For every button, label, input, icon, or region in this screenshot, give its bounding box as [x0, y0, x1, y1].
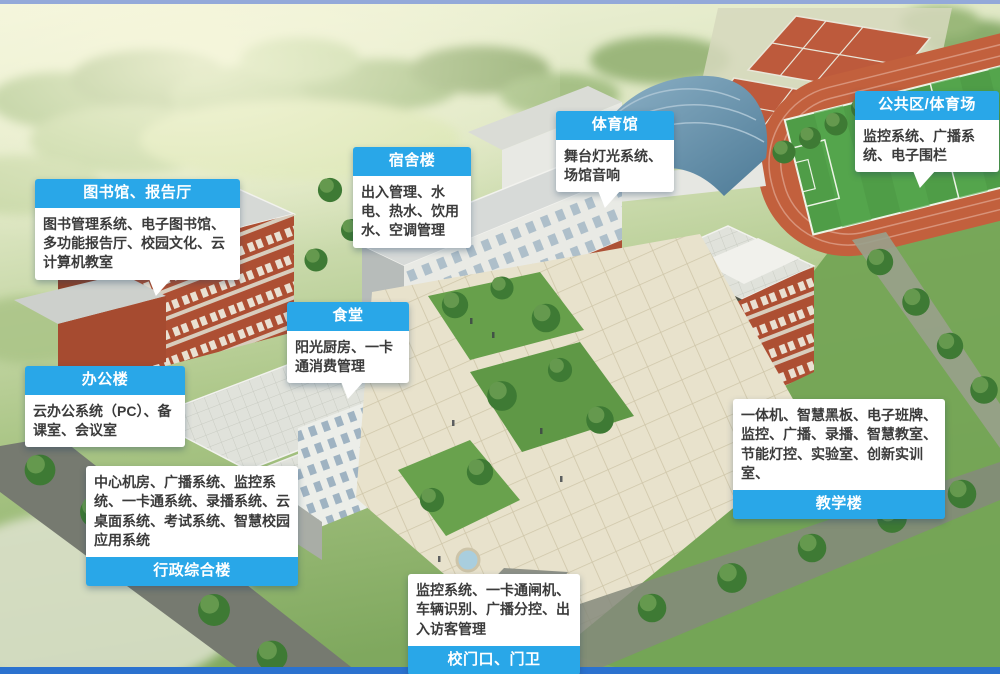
callout-office: 办公楼 云办公系统（PC）、备课室、会议室	[25, 366, 185, 447]
callout-teaching: 一体机、智慧黑板、电子班牌、监控、广播、录播、智慧教室、节能灯控、实验室、创新实…	[733, 399, 945, 519]
callout-office-body: 云办公系统（PC）、备课室、会议室	[25, 395, 185, 448]
callout-tail	[594, 191, 620, 208]
callout-tail	[337, 382, 363, 399]
callout-public-area-title: 公共区/体育场	[855, 91, 999, 120]
callout-teaching-body: 一体机、智慧黑板、电子班牌、监控、广播、录播、智慧教室、节能灯控、实验室、创新实…	[733, 399, 945, 490]
callout-tail	[145, 279, 171, 296]
callout-gate: 监控系统、一卡通闸机、车辆识别、广播分控、出入访客管理 校门口、门卫	[408, 574, 580, 674]
callout-admin-body: 中心机房、广播系统、监控系统、一卡通系统、录播系统、云桌面系统、考试系统、智慧校…	[86, 466, 298, 557]
callout-canteen: 食堂 阳光厨房、一卡通消费管理	[287, 302, 409, 383]
callout-dormitory-title: 宿舍楼	[353, 147, 471, 176]
callout-gate-body: 监控系统、一卡通闸机、车辆识别、广播分控、出入访客管理	[408, 574, 580, 646]
callout-gymnasium: 体育馆 舞台灯光系统、场馆音响	[556, 111, 674, 192]
callout-admin-title: 行政综合楼	[86, 557, 298, 586]
callout-tail	[909, 171, 935, 188]
fountain	[457, 549, 479, 571]
top-border-line	[0, 0, 1000, 4]
callout-canteen-title: 食堂	[287, 302, 409, 331]
callout-canteen-body: 阳光厨房、一卡通消费管理	[287, 331, 409, 384]
callout-dormitory: 宿舍楼 出入管理、水电、热水、饮用水、空调管理	[353, 147, 471, 248]
callout-admin: 中心机房、广播系统、监控系统、一卡通系统、录播系统、云桌面系统、考试系统、智慧校…	[86, 466, 298, 586]
callout-public-area: 公共区/体育场 监控系统、广播系统、电子围栏	[855, 91, 999, 172]
callout-public-area-body: 监控系统、广播系统、电子围栏	[855, 120, 999, 173]
callout-office-title: 办公楼	[25, 366, 185, 395]
callout-library: 图书馆、报告厅 图书管理系统、电子图书馆、多功能报告厅、校园文化、云计算机教室	[35, 179, 240, 280]
callout-library-title: 图书馆、报告厅	[35, 179, 240, 208]
callout-dormitory-body: 出入管理、水电、热水、饮用水、空调管理	[353, 176, 471, 248]
callout-teaching-title: 教学楼	[733, 490, 945, 519]
callout-gate-title: 校门口、门卫	[408, 646, 580, 674]
callout-library-body: 图书管理系统、电子图书馆、多功能报告厅、校园文化、云计算机教室	[35, 208, 240, 280]
callout-gymnasium-body: 舞台灯光系统、场馆音响	[556, 140, 674, 193]
campus-aerial-diagram: 图书馆、报告厅 图书管理系统、电子图书馆、多功能报告厅、校园文化、云计算机教室 …	[0, 0, 1000, 674]
callout-gymnasium-title: 体育馆	[556, 111, 674, 140]
